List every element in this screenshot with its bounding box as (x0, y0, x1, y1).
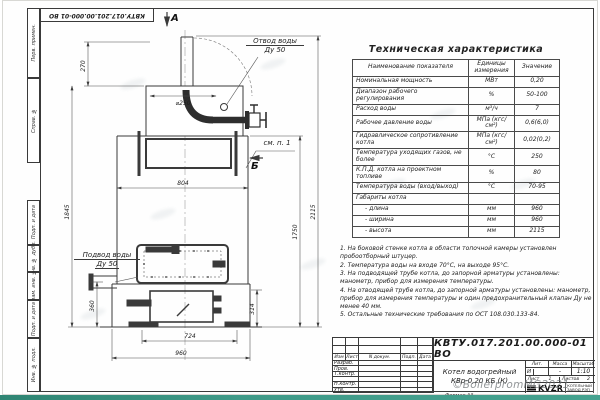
dim-360: 360 (89, 300, 96, 312)
row-utv: Утв. (333, 388, 359, 393)
inlet-label-line2: Ду 50 (95, 260, 120, 269)
lit-value-cells: И (525, 368, 548, 376)
mass-value: - (548, 368, 571, 376)
outlet-label-line2: Ду 50 (246, 46, 304, 54)
note-5: 5. Остальные технические требования по О… (340, 311, 594, 319)
inlet-label-line1: Подвод воды (74, 251, 140, 260)
spec-row: Температура воды (вход/выход)°С70-95 (353, 182, 560, 193)
spec-table-block: Техническая характеристика Наименование … (352, 44, 560, 238)
spec-row: Температура уходящих газов, не более°С25… (353, 149, 560, 166)
spec-row: - длинамм960 (353, 204, 560, 215)
spec-row: Габариты котла (353, 193, 560, 204)
col-list: Лист (346, 354, 359, 361)
see-note-label: см. п. 1 (255, 139, 299, 147)
spec-row: Расход водым³/ч7 (353, 104, 560, 115)
water-inlet-label: Подвод воды Ду 50 (74, 251, 140, 269)
product-title-line1: Котел водогрейный (443, 368, 517, 377)
lit-header: Лит. (525, 361, 548, 368)
dim-2115: 2115 (310, 204, 317, 219)
dim-1845: 1845 (64, 204, 71, 219)
dim-270: 270 (80, 60, 87, 72)
note-1: 1. На боковой стенке котла в области топ… (340, 245, 594, 261)
col-izm: Изм (333, 354, 346, 361)
scale-header: Масштаб (571, 361, 595, 368)
doc-number-cell: КВТУ.017.201.00.000-01 ВО (433, 338, 595, 361)
spec-header-units: Единицы измерения (469, 60, 515, 77)
col-ndokum: N докум. (359, 354, 401, 361)
col-podp: Подп. (401, 354, 418, 361)
spec-table: Наименование показателя Единицы измерени… (352, 59, 560, 238)
col-data: Дата (418, 354, 433, 361)
kvzr-logo-caption: КОТЕЛЬНЫЙ ЗАВОД РЭП (565, 383, 594, 393)
scale-value: 1:10 (571, 368, 595, 376)
spec-row: Диапазон рабочего регулирования%50-100 (353, 87, 560, 104)
see-note-text: см. п. 1 (263, 139, 290, 147)
spec-row: Номинальная мощностьМВт0,20 (353, 76, 560, 87)
spec-header-value: Значение (515, 60, 560, 77)
spec-row: - ширинамм960 (353, 215, 560, 226)
dimension-lines (68, 36, 322, 361)
sheets-value: 2 (582, 377, 596, 382)
spec-row: Гидравлическое сопротивление котлаМПа (к… (353, 132, 560, 149)
note-3: 3. На подводящей трубе котла, до запорно… (340, 270, 594, 286)
mass-header: Масса (548, 361, 571, 368)
water-outlet-label: Отвод воды Ду 50 (246, 37, 304, 54)
spec-table-title: Техническая характеристика (352, 44, 560, 55)
note-4: 4. На отводящей трубе котла, до запорной… (340, 287, 594, 310)
spec-row: К.П.Д. котла на проектном топливе%80 (353, 165, 560, 182)
dim-960: 960 (175, 350, 187, 357)
boiler-line-art (89, 37, 262, 327)
dim-724: 724 (184, 333, 196, 340)
drawing-sheet: Перв. примен. Справ. № Подп. и дата Инв.… (0, 0, 600, 400)
lit-value: И (526, 369, 534, 375)
dim-804: 804 (177, 180, 189, 187)
spec-header-name: Наименование показателя (353, 60, 469, 77)
technical-notes: 1. На боковой стенке котла в области топ… (340, 245, 594, 320)
outlet-label-line1: Отвод воды (246, 37, 304, 46)
dim-314: 314 (249, 303, 256, 315)
view-a-letter: А (171, 13, 179, 24)
copyright-watermark: ©BoilerpromMG2021 (452, 379, 569, 391)
view-b-letter: Б (251, 161, 259, 172)
dim-dia-250: ⌀250 (175, 100, 190, 107)
bottom-teal-bar (0, 395, 600, 400)
dimension-texts: 270 1845 360 314 1750 2115 ⌀250 804 724 … (64, 60, 317, 357)
spec-header-row: Наименование показателя Единицы измерени… (353, 60, 560, 77)
title-block-left-grid: Изм Лист N докум. Подп. Дата Разраб. Про… (333, 338, 433, 393)
note-2: 2. Температура воды на входе 70°С, на вы… (340, 262, 594, 270)
spec-row: - высотамм2115 (353, 226, 560, 237)
dim-1750: 1750 (292, 224, 299, 239)
spec-row: Рабочее давление водыМПа (кгс/см²)0,6(6,… (353, 115, 560, 132)
